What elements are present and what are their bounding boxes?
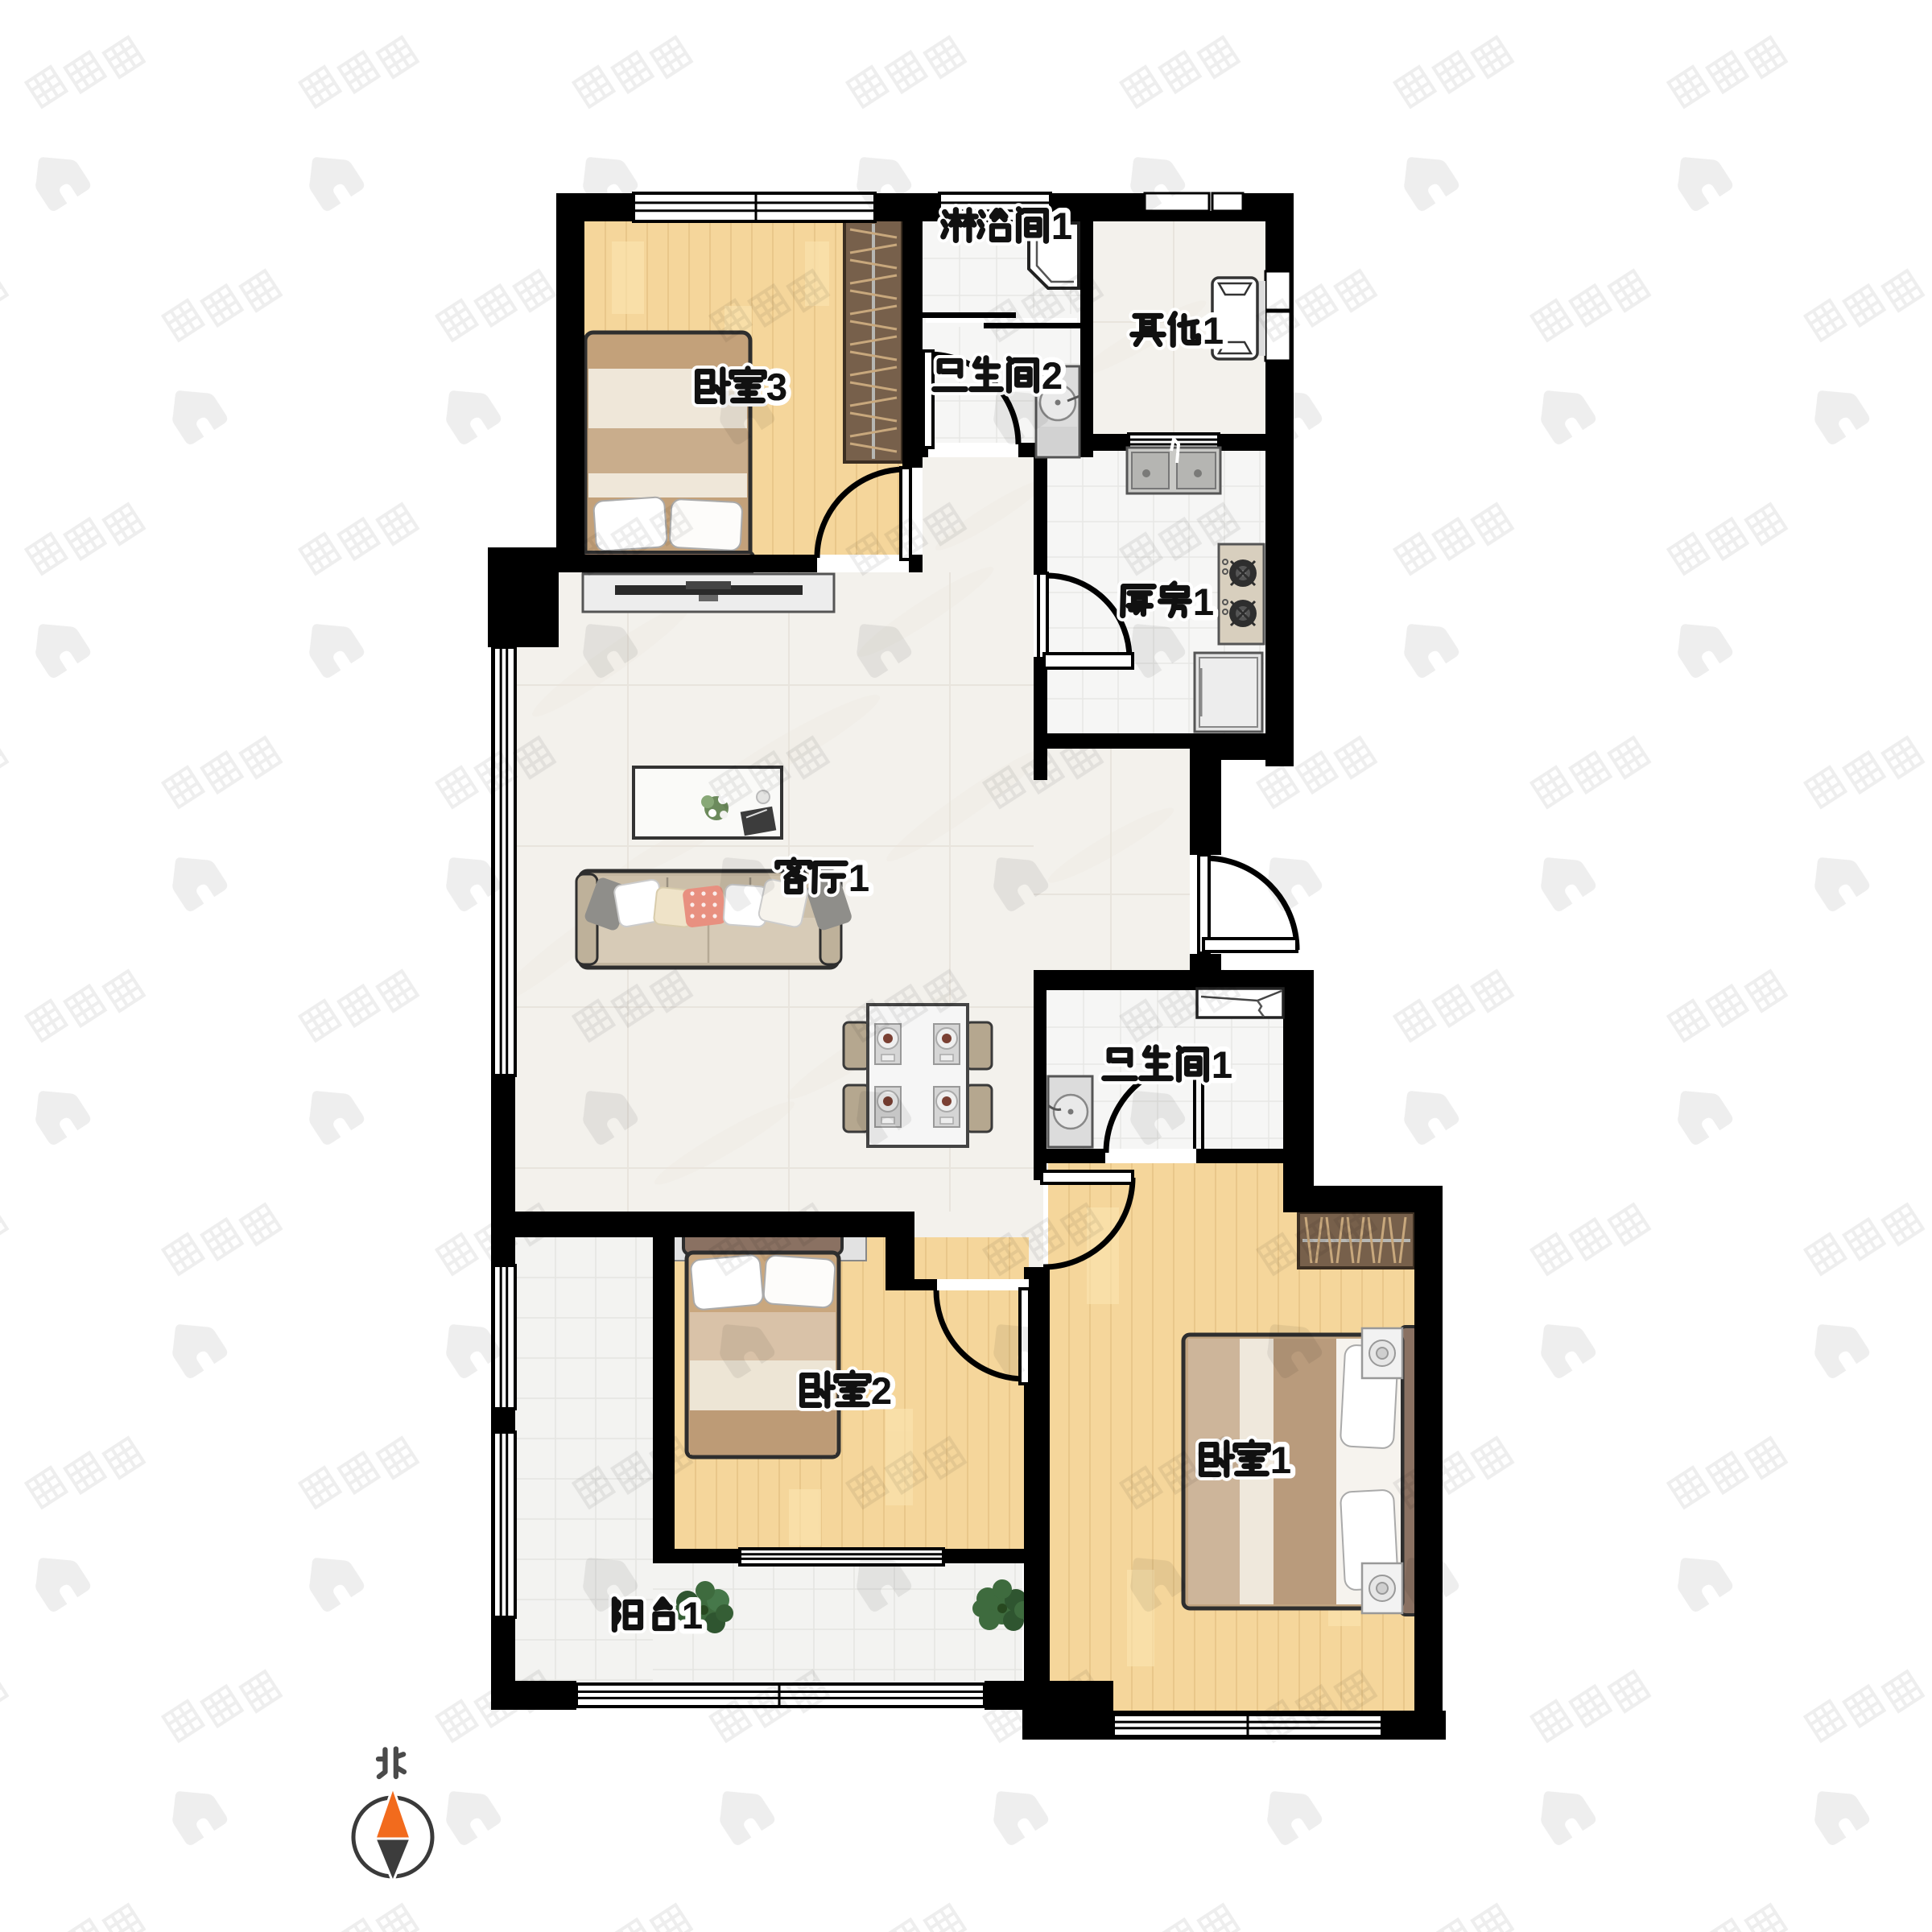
svg-text:1: 1 [1212,1043,1232,1086]
svg-text:2: 2 [1042,354,1063,397]
svg-text:2: 2 [871,1369,892,1412]
svg-text:1: 1 [1203,309,1224,352]
svg-text:1: 1 [1051,204,1072,247]
svg-text:1: 1 [682,1594,703,1637]
svg-text:1: 1 [1270,1439,1291,1481]
svg-text:1: 1 [848,857,869,899]
svg-text:1: 1 [1193,580,1214,623]
svg-text:3: 3 [766,365,787,408]
